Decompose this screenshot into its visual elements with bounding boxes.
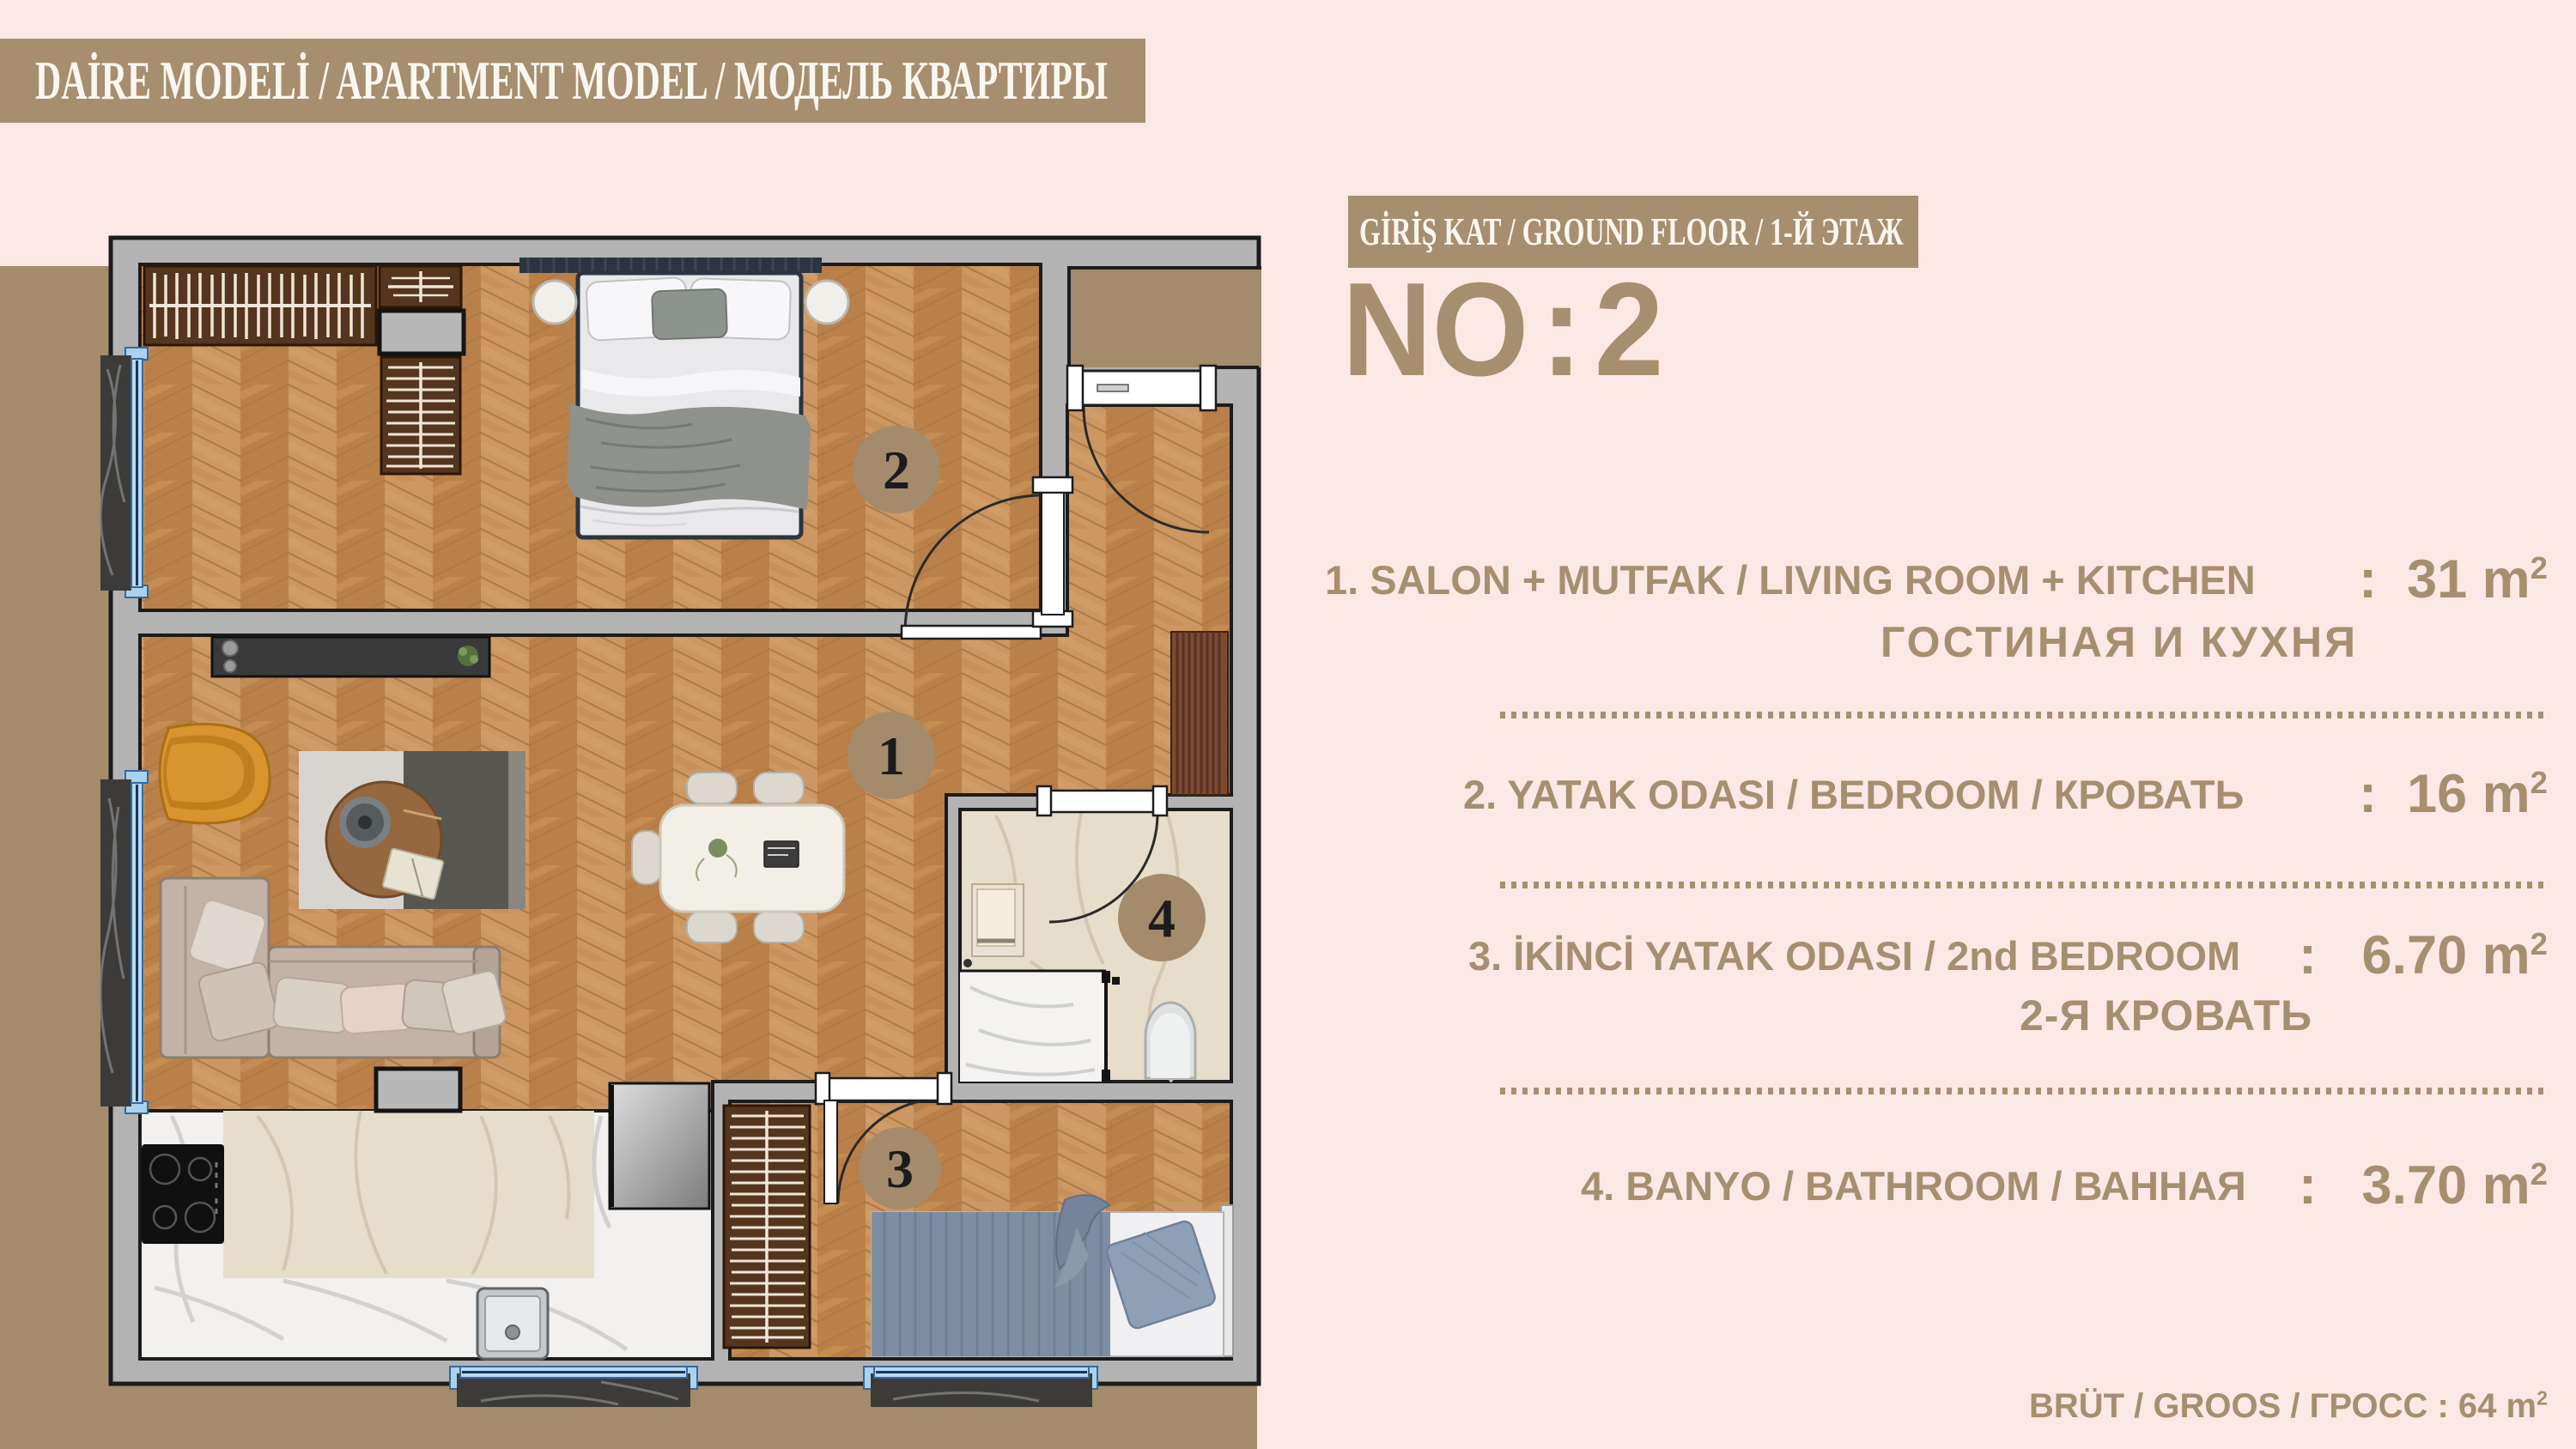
- svg-text:1: 1: [878, 725, 905, 786]
- svg-text:3: 3: [886, 1138, 914, 1199]
- svg-text:2: 2: [883, 440, 910, 500]
- svg-text:4: 4: [1148, 888, 1176, 949]
